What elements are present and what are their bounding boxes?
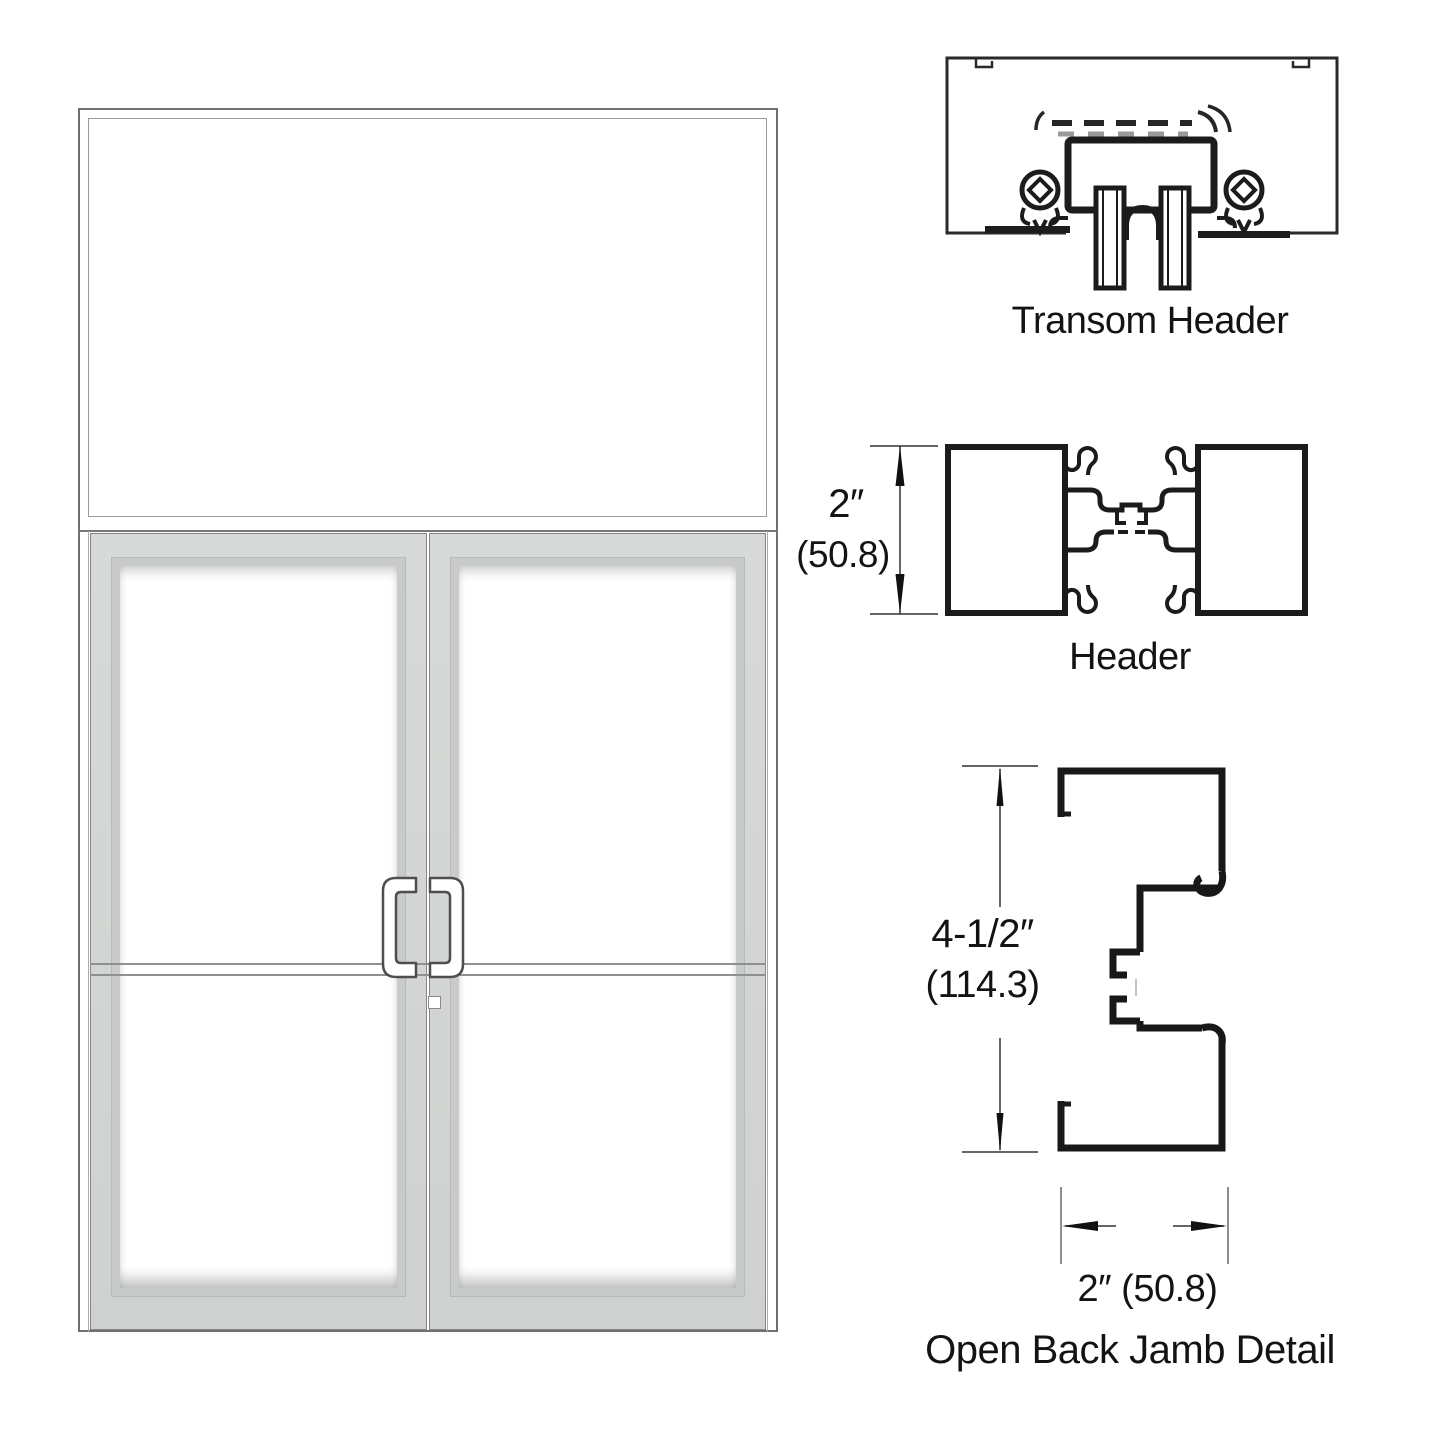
header-dim-inches: 2″ <box>790 482 902 527</box>
transom-glass-panel <box>88 118 767 517</box>
door-pull-handles-icon <box>375 870 480 985</box>
jamb-height-dim-mm: (114.3) <box>920 964 1045 1007</box>
header-label: Header <box>1005 636 1255 679</box>
storefront-door-diagram: Transom Header 2″ <box>0 0 1445 1445</box>
transom-header-drawing <box>940 50 1345 300</box>
header-detail: 2″ (50.8) Header <box>790 430 1330 700</box>
left-jamb-line <box>88 531 89 1332</box>
transom-header-detail: Transom Header <box>940 50 1345 350</box>
header-drawing <box>790 430 1330 630</box>
door-glass-bevel <box>111 557 406 1297</box>
open-back-jamb-detail: 4-1/2″ (114.3) 2″ (50.8) Open Back Jamb … <box>920 740 1350 1400</box>
latch-keeper <box>428 996 441 1009</box>
header-dim-mm: (50.8) <box>778 534 908 576</box>
door-head-line <box>78 530 778 532</box>
jamb-height-dim-inches: 4-1/2″ <box>920 912 1045 957</box>
right-jamb-line <box>767 531 768 1332</box>
open-back-jamb-label: Open Back Jamb Detail <box>925 1328 1335 1373</box>
door-glass-right <box>459 566 736 1288</box>
jamb-width-dim: 2″ (50.8) <box>1065 1268 1230 1311</box>
transom-header-label: Transom Header <box>950 300 1350 343</box>
door-glass-left <box>120 566 397 1288</box>
door-glass-bevel <box>450 557 745 1297</box>
